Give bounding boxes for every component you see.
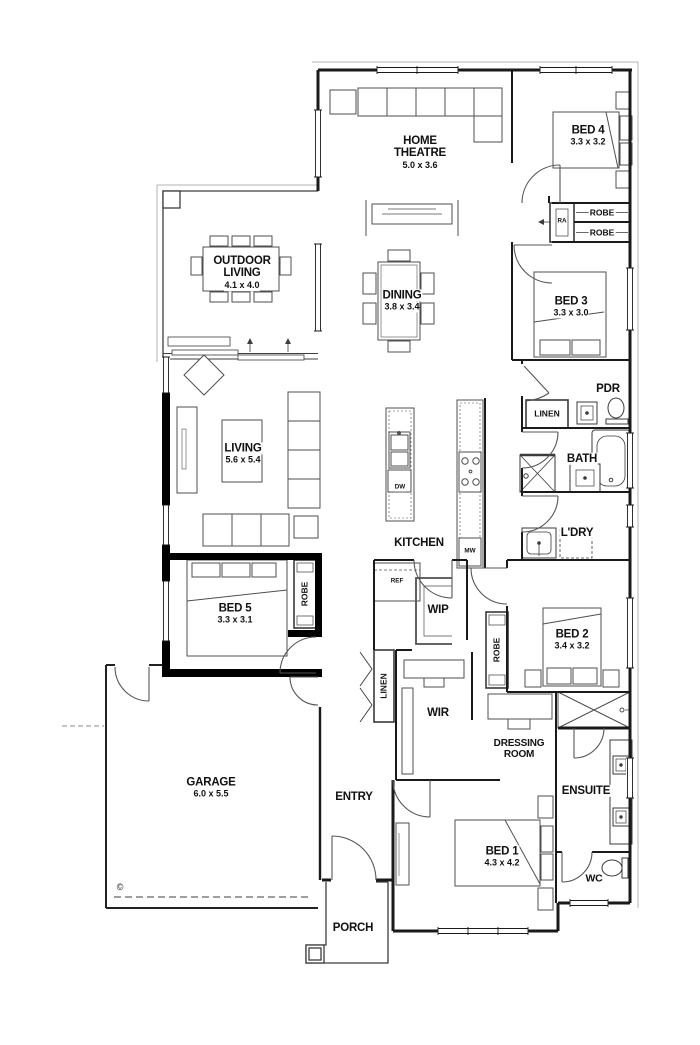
ra-arrow bbox=[538, 219, 544, 225]
garage-side-door bbox=[115, 667, 149, 701]
room-dims: 3.4 x 3.2 bbox=[554, 642, 589, 652]
room-label-kitchen: KITCHEN bbox=[393, 537, 445, 549]
laundry-door bbox=[522, 496, 558, 532]
room-dims: 3.3 x 3.2 bbox=[570, 138, 605, 148]
room-label-ensuite: ENSUITE bbox=[561, 785, 611, 797]
wir-shelf-side bbox=[402, 688, 413, 774]
chair bbox=[388, 250, 410, 261]
room-label-dressing: DRESSING ROOM bbox=[487, 739, 551, 761]
window bbox=[438, 927, 528, 935]
dressing-bench bbox=[488, 694, 552, 719]
room-name: KITCHEN bbox=[393, 537, 445, 549]
window bbox=[626, 433, 634, 488]
label-return-air: RA bbox=[557, 219, 566, 226]
room-label-wip: WIP bbox=[426, 604, 449, 616]
room-name: BED 3 bbox=[554, 295, 589, 307]
room-name: L'DRY bbox=[560, 527, 595, 539]
label-dishwasher: DW bbox=[395, 485, 406, 492]
closet-name: ROBE bbox=[589, 228, 616, 237]
dw-label: DW bbox=[395, 485, 406, 492]
closet-name: ROBE bbox=[589, 208, 616, 217]
bed5-north-wall bbox=[162, 553, 322, 560]
window bbox=[570, 899, 608, 907]
pillow bbox=[540, 340, 570, 355]
window bbox=[377, 66, 458, 74]
room-name: WC bbox=[584, 873, 603, 884]
closet-name: LINEN bbox=[379, 672, 388, 700]
bedside-table bbox=[538, 888, 553, 910]
pillow bbox=[252, 563, 276, 577]
front-door bbox=[332, 836, 376, 880]
closet-name: ROBE bbox=[492, 637, 501, 664]
chair bbox=[232, 236, 250, 246]
wir-shelf bbox=[404, 660, 464, 678]
room-label-bed5: BED 5 3.3 x 3.1 bbox=[217, 602, 252, 625]
room-label-bed2: BED 2 3.4 x 3.2 bbox=[554, 628, 589, 651]
pillow bbox=[192, 563, 220, 577]
room-name: ENTRY bbox=[334, 791, 374, 803]
chair bbox=[363, 273, 376, 294]
ensuite-door bbox=[574, 728, 604, 758]
window bbox=[162, 505, 170, 545]
wc-toilet bbox=[602, 860, 622, 876]
room-dims: 3.8 x 3.4 bbox=[384, 303, 419, 313]
bedside-table bbox=[525, 670, 541, 687]
armchair bbox=[330, 90, 356, 114]
room-name: BATH bbox=[566, 453, 598, 465]
window bbox=[540, 66, 612, 74]
doors bbox=[115, 165, 604, 882]
room-label-porch: PORCH bbox=[332, 922, 375, 934]
door-swing-arrows bbox=[250, 341, 288, 352]
window bbox=[162, 581, 170, 641]
window bbox=[162, 357, 170, 393]
ra-label: RA bbox=[557, 219, 566, 226]
label-robe-bed5: ROBE bbox=[300, 581, 309, 608]
side-table bbox=[294, 516, 318, 538]
room-name: BED 2 bbox=[555, 628, 590, 640]
chair bbox=[254, 236, 272, 246]
closet-name: ROBE bbox=[300, 581, 309, 608]
ref-label: REF bbox=[391, 579, 404, 586]
chair bbox=[210, 292, 228, 302]
room-label-dining: DINING 3.8 x 3.4 bbox=[381, 289, 422, 312]
pillow bbox=[572, 340, 600, 355]
room-dims: 5.6 x 5.4 bbox=[225, 456, 260, 466]
window bbox=[626, 758, 634, 798]
label-robe-bed4-top: ROBE bbox=[589, 208, 616, 217]
chair bbox=[388, 341, 410, 352]
label-robe-bed2: ROBE bbox=[492, 637, 501, 664]
label-microwave: MW bbox=[464, 549, 475, 556]
bed1-furniture bbox=[396, 796, 553, 910]
room-label-pdr: PDR bbox=[595, 383, 621, 395]
chair bbox=[363, 303, 376, 324]
window bbox=[626, 268, 634, 330]
label-fridge: REF bbox=[391, 579, 404, 586]
room-name: PORCH bbox=[332, 922, 375, 934]
room-name: WIP bbox=[426, 604, 449, 616]
theatre-sofa bbox=[358, 88, 502, 116]
pdr-door bbox=[524, 366, 549, 401]
room-dims: 6.0 x 5.5 bbox=[193, 790, 228, 800]
room-name: HOME THEATRE bbox=[389, 135, 451, 160]
room-dims: 4.1 x 4.0 bbox=[224, 281, 259, 291]
label-linen-hall: LINEN bbox=[533, 409, 561, 418]
chair bbox=[210, 236, 228, 246]
room-label-bed3: BED 3 3.3 x 3.0 bbox=[553, 295, 588, 318]
bedside-table bbox=[603, 670, 619, 687]
bifold-doors bbox=[360, 652, 372, 722]
chair bbox=[421, 303, 434, 324]
chair bbox=[232, 292, 250, 302]
pillow bbox=[222, 563, 250, 577]
room-label-bed1: BED 1 4.3 x 4.2 bbox=[484, 845, 519, 868]
room-name: BED 4 bbox=[571, 124, 606, 136]
window bbox=[314, 244, 322, 331]
room-name: DINING bbox=[381, 289, 422, 301]
room-label-wir: WIR bbox=[426, 707, 450, 719]
copyright-symbol: © bbox=[116, 883, 124, 893]
closet-name: LINEN bbox=[533, 409, 561, 418]
bed1-door bbox=[393, 780, 430, 817]
chair bbox=[280, 257, 291, 275]
pillow bbox=[573, 668, 597, 684]
room-name: BED 5 bbox=[218, 602, 253, 614]
pillow bbox=[541, 826, 553, 852]
room-label-outdoor-living: OUTDOOR LIVING 4.1 x 4.0 bbox=[207, 255, 277, 291]
window bbox=[626, 505, 634, 527]
pillow bbox=[547, 668, 571, 684]
pillow bbox=[541, 854, 553, 880]
chair bbox=[254, 292, 272, 302]
chair bbox=[191, 257, 202, 275]
bedside-table bbox=[538, 796, 553, 818]
room-label-living: LIVING 5.6 x 5.4 bbox=[223, 442, 262, 465]
sliding-door-panel bbox=[238, 355, 304, 360]
room-dims: 4.3 x 4.2 bbox=[484, 859, 519, 869]
label-robe-bed4-bottom: ROBE bbox=[589, 228, 616, 237]
room-name: BED 1 bbox=[485, 845, 520, 857]
room-label-entry: ENTRY bbox=[334, 791, 374, 803]
mw-label: MW bbox=[464, 549, 475, 556]
window bbox=[314, 110, 322, 177]
copyright-mark: © bbox=[116, 883, 124, 893]
sliding-door-panel bbox=[172, 350, 238, 355]
hall-console bbox=[396, 823, 409, 885]
pdr-toilet bbox=[608, 398, 624, 418]
room-name: DRESSING ROOM bbox=[487, 739, 551, 761]
room-name: ENSUITE bbox=[561, 785, 611, 797]
corner-table bbox=[184, 355, 224, 395]
floor-plan: HOME THEATRE 5.0 x 3.6 BED 4 3.3 x 3.2 R… bbox=[0, 0, 700, 1045]
garage-internal-door bbox=[290, 677, 318, 705]
room-name: LIVING bbox=[223, 442, 262, 454]
room-label-laundry: L'DRY bbox=[560, 527, 595, 539]
label-linen-entry: LINEN bbox=[379, 672, 388, 700]
bed5-east-wall bbox=[315, 553, 322, 637]
room-label-garage: GARAGE 6.0 x 5.5 bbox=[185, 776, 236, 799]
room-dims: 5.0 x 3.6 bbox=[402, 161, 437, 171]
bed4-door bbox=[522, 165, 560, 203]
tv-cabinet bbox=[177, 407, 197, 493]
sofa bbox=[203, 514, 289, 546]
room-label-bath: BATH bbox=[566, 453, 598, 465]
bed2-door bbox=[471, 568, 507, 604]
room-name: WIR bbox=[426, 707, 450, 719]
chair bbox=[421, 273, 434, 294]
slider-track bbox=[168, 337, 230, 346]
post bbox=[163, 191, 180, 208]
floor-plan-drawing bbox=[0, 0, 700, 1045]
room-dims: 3.3 x 3.0 bbox=[553, 309, 588, 319]
room-dims: 3.3 x 3.1 bbox=[217, 616, 252, 626]
room-name: GARAGE bbox=[185, 776, 236, 788]
room-label-bed4: BED 4 3.3 x 3.2 bbox=[570, 124, 605, 147]
room-label-wc: WC bbox=[584, 873, 603, 884]
window bbox=[626, 598, 634, 668]
sofa-chaise bbox=[474, 116, 502, 142]
room-label-home-theatre: HOME THEATRE 5.0 x 3.6 bbox=[389, 135, 451, 171]
room-name: PDR bbox=[595, 383, 621, 395]
room-name: OUTDOOR LIVING bbox=[207, 255, 277, 280]
